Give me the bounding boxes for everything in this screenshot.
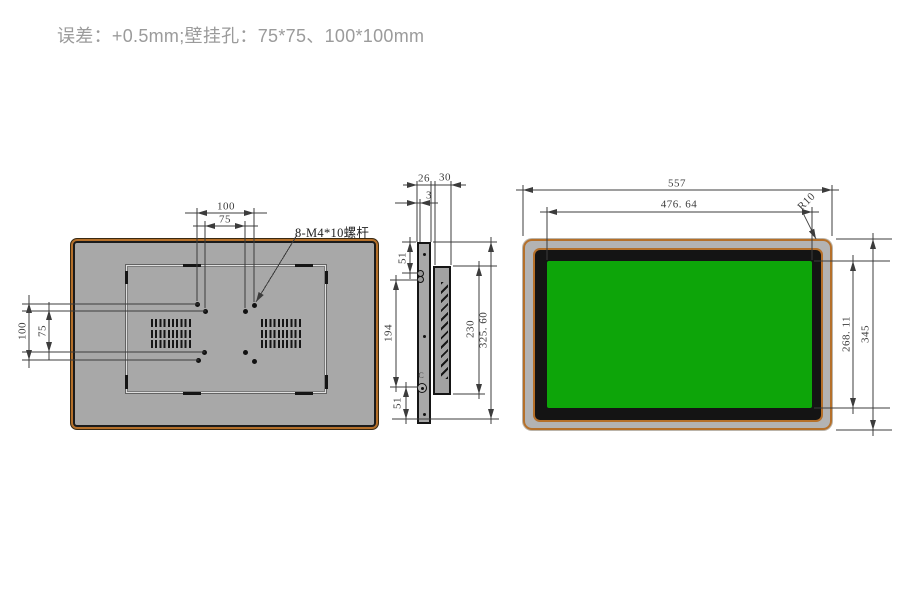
panel-clip-mark [325, 271, 328, 284]
dim-label-depth-total: 30 [439, 173, 451, 184]
vesa-hole-75 [243, 350, 248, 355]
dim-label-overall-height: 345 [861, 325, 872, 343]
vent-grille-right [261, 319, 302, 348]
dim-label-overall-width: 557 [668, 179, 686, 190]
dim-label-side-bottom-offset: 51 [393, 397, 404, 409]
dim-label-side-mid-span: 194 [384, 324, 395, 342]
rear-panel-body [70, 238, 379, 430]
vesa-hole-100 [252, 359, 257, 364]
panel-clip-mark [125, 375, 128, 389]
technical-drawing-page: { "page": { "tolerance_note": "误差：+0.5mm… [0, 0, 900, 600]
screw-dot [423, 413, 426, 416]
tolerance-note: 误差：+0.5mm;壁挂孔：75*75、100*100mm [57, 22, 424, 48]
mount-boss [417, 271, 424, 282]
dim-label-depth-front: 26 [418, 174, 430, 185]
dim-label-viewable-height: 268. 11 [842, 316, 853, 352]
clip-mark-label: C [418, 372, 423, 380]
panel-clip-mark [125, 271, 128, 284]
screw-dot [423, 335, 426, 338]
panel-clip-mark [183, 392, 201, 395]
dim-label-viewable-width: 476. 64 [661, 200, 698, 211]
panel-clip-mark [295, 392, 313, 395]
dim-label-corner-radius: R10 [796, 191, 818, 213]
dim-label-rear-body-height: 230 [466, 320, 477, 338]
screen [547, 261, 812, 408]
vesa-hole-100 [196, 358, 201, 363]
panel-clip-mark [183, 264, 201, 267]
dim-label-front-lip: 3 [426, 191, 432, 202]
vesa-hole-100 [195, 302, 200, 307]
vesa-hole-75 [202, 350, 207, 355]
panel-clip-mark [325, 375, 328, 389]
panel-clip-mark [295, 264, 313, 267]
dim-label-side-overall-height: 325. 60 [479, 312, 490, 349]
vesa-hole-75 [243, 309, 248, 314]
vent-grille-left [151, 319, 193, 348]
screw-dot [423, 253, 426, 256]
side-rear-body [433, 266, 451, 395]
vesa-hole-75 [203, 309, 208, 314]
screw-spec-note: 8-M4*10螺杆 [295, 222, 369, 241]
dim-label-rear-width-outer: 100 [217, 202, 235, 213]
dim-label-rear-height-inner: 75 [38, 325, 49, 337]
side-vent-slats [441, 282, 448, 379]
dim-label-rear-width-inner: 75 [219, 215, 231, 226]
vesa-hole-100 [252, 303, 257, 308]
side-screw-head [417, 383, 427, 393]
dim-label-rear-height-outer: 100 [18, 322, 29, 340]
dim-label-side-top-offset: 51 [398, 252, 409, 264]
